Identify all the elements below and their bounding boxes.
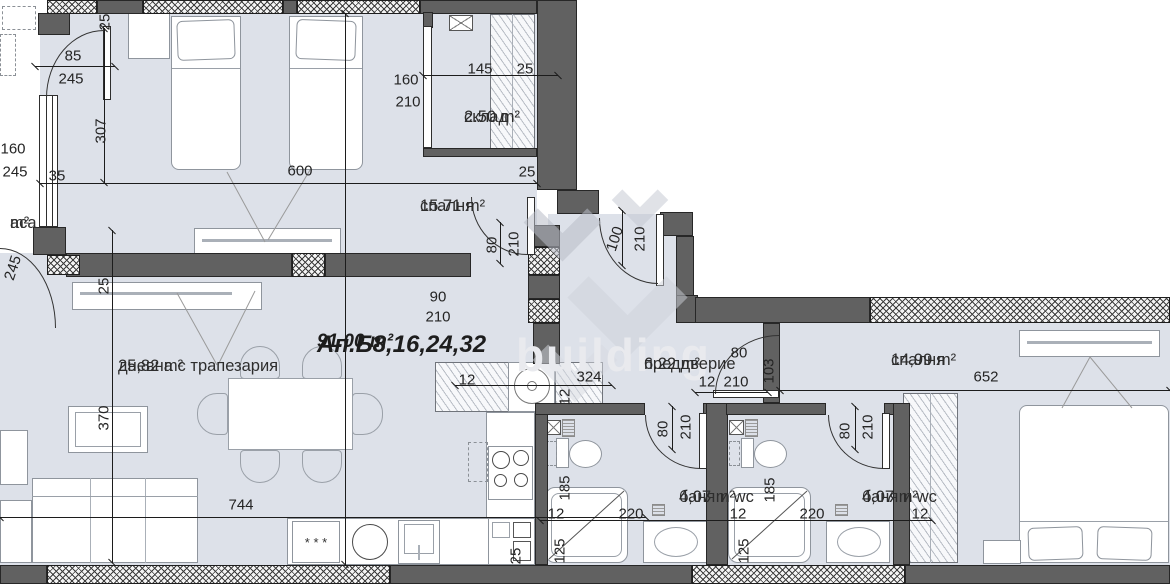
dimension-labels: 2585245307160245356001452516021025802109… bbox=[0, 0, 1170, 584]
dimension-label: 245 bbox=[2, 165, 27, 180]
dimension-label: 160 bbox=[393, 73, 418, 88]
dimension-label: 245 bbox=[2, 254, 24, 282]
dimension-label: 370 bbox=[97, 405, 112, 430]
dimension-label: 307 bbox=[94, 118, 109, 143]
room-area: 15.71 m² bbox=[420, 196, 485, 216]
room-area: 4,07 m² bbox=[862, 487, 918, 507]
dimension-label: 210 bbox=[679, 414, 694, 439]
dimension-label: 25 bbox=[98, 14, 113, 31]
dimension-label: 25 bbox=[519, 165, 536, 180]
dimension-label: 210 bbox=[425, 310, 450, 325]
floor-plan: * * * bbox=[0, 0, 1170, 584]
dimension-label: 103 bbox=[762, 358, 777, 383]
room-area: 4,07 m² bbox=[679, 487, 735, 507]
dimension-label: 220 bbox=[799, 507, 824, 522]
dimension-label: 80 bbox=[485, 237, 500, 254]
room-area: 6.22 m² bbox=[644, 354, 700, 374]
apartment-total-area: 91.00 m² bbox=[317, 331, 393, 353]
dimension-label: 210 bbox=[861, 414, 876, 439]
dimension-label: 12 bbox=[912, 507, 929, 522]
dimension-label: 35 bbox=[49, 169, 66, 184]
room-area: 2.50 m² bbox=[464, 107, 520, 127]
dimension-label: 25 bbox=[509, 548, 524, 565]
room-area: 25,82 m² bbox=[118, 356, 183, 376]
dimension-label: 210 bbox=[507, 231, 522, 256]
dimension-label: 125 bbox=[553, 538, 568, 563]
dimension-label: 245 bbox=[58, 72, 83, 87]
dimension-label: 210 bbox=[723, 375, 748, 390]
dimension-label: 600 bbox=[287, 164, 312, 179]
dimension-label: 210 bbox=[395, 95, 420, 110]
dimension-label: 100 bbox=[604, 225, 626, 253]
dimension-label: 185 bbox=[763, 477, 778, 502]
dimension-label: 25 bbox=[97, 278, 112, 295]
dimension-label: 25 bbox=[517, 62, 534, 77]
room-area: m² bbox=[10, 213, 29, 233]
dimension-label: 185 bbox=[558, 475, 573, 500]
dimension-label: 210 bbox=[633, 226, 648, 251]
dimension-label: 220 bbox=[618, 507, 643, 522]
dimension-label: 652 bbox=[973, 370, 998, 385]
dimension-label: 12 bbox=[548, 507, 565, 522]
dimension-label: 80 bbox=[656, 421, 671, 438]
dimension-label: 12 bbox=[558, 389, 573, 406]
dimension-label: 80 bbox=[838, 423, 853, 440]
dimension-label: 90 bbox=[430, 290, 447, 305]
dimension-label: 744 bbox=[228, 498, 253, 513]
dimension-label: 12 bbox=[459, 373, 476, 388]
dimension-label: 125 bbox=[737, 538, 752, 563]
dimension-label: 12 bbox=[699, 375, 716, 390]
dimension-label: 12 bbox=[730, 507, 747, 522]
room-area: 14,99 m² bbox=[891, 350, 956, 370]
dimension-label: 85 bbox=[65, 49, 82, 64]
dimension-label: 160 bbox=[0, 142, 25, 157]
dimension-label: 324 bbox=[576, 370, 601, 385]
dimension-label: 145 bbox=[467, 62, 492, 77]
